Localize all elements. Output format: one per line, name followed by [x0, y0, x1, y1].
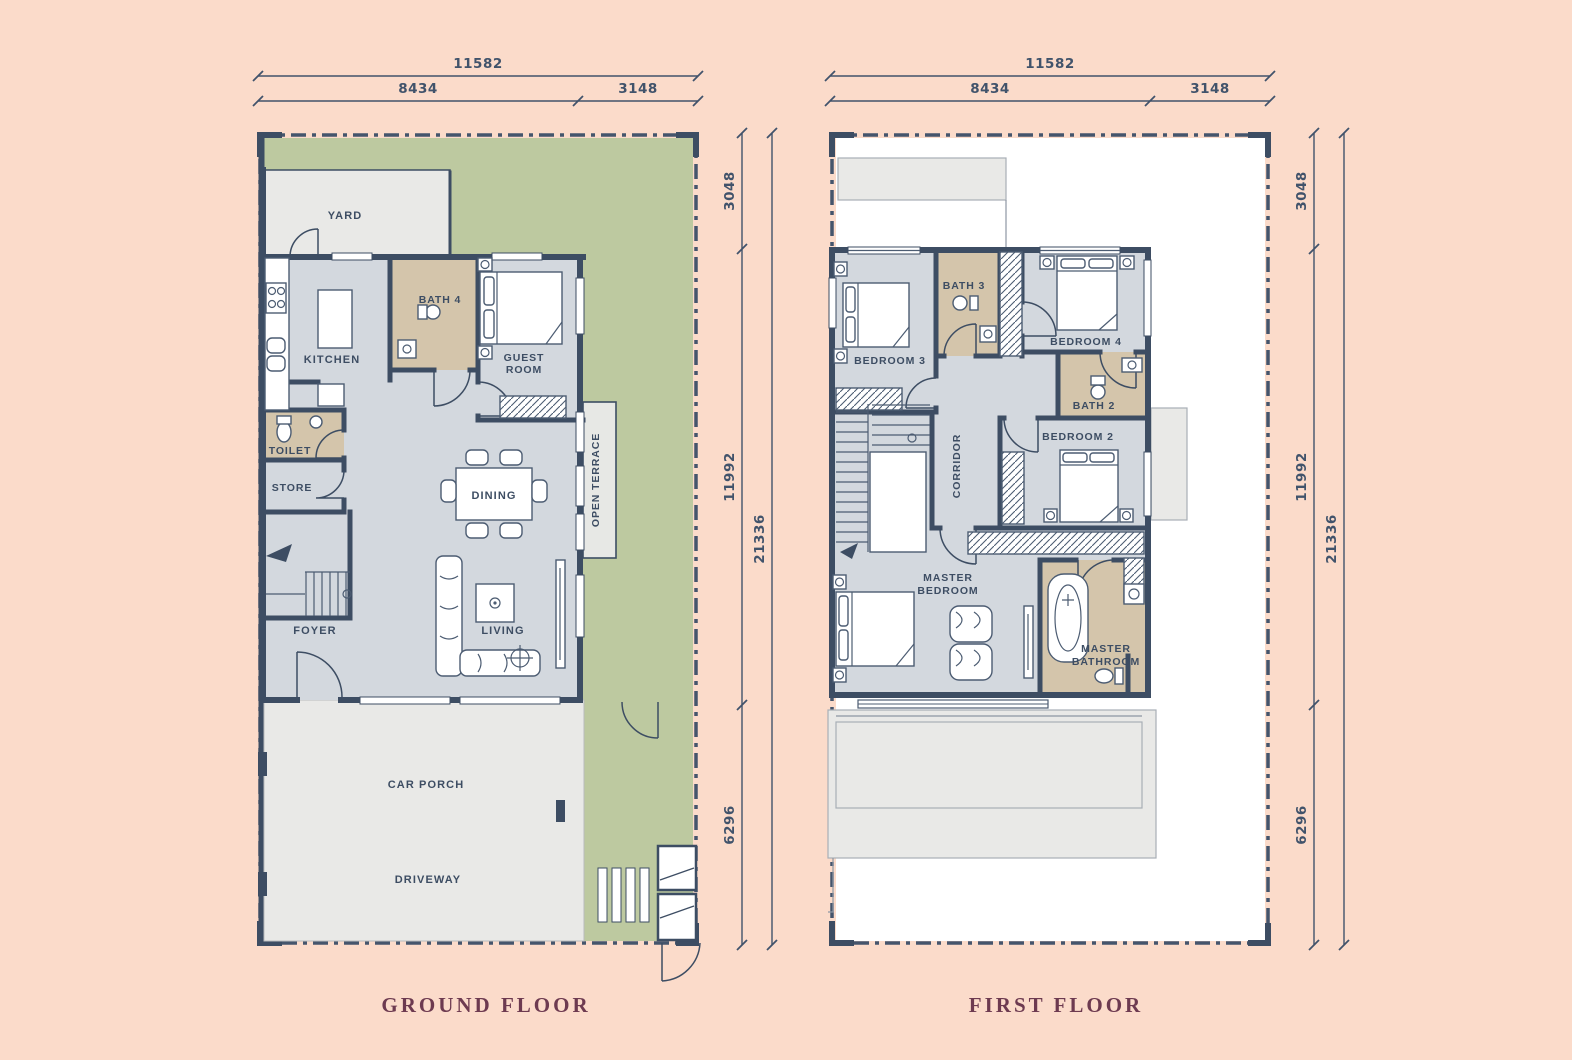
label-master-bedroom-line2: BEDROOM — [917, 585, 978, 597]
dim-gf-depth-top: 3048 — [722, 171, 738, 211]
terrace-sliding-door — [576, 412, 584, 550]
label-master-bathroom-line2: BATHROOM — [1072, 656, 1140, 668]
floor-plan-drawing: YARD KITCHEN BATH 4 GUEST ROOM TOILET ST… — [0, 0, 1572, 1060]
dim-ff-depth-bottom: 6296 — [1294, 805, 1310, 845]
label-yard: YARD — [328, 210, 363, 222]
first-floor-title: FIRST FLOOR — [969, 993, 1143, 1017]
roof-over-yard — [838, 158, 1006, 200]
dim-gf-width-total: 11582 — [453, 56, 502, 72]
label-living: LIVING — [481, 625, 524, 637]
label-dining: DINING — [471, 490, 516, 502]
roof-over-terrace — [1151, 408, 1187, 520]
dim-ff-width-total: 11582 — [1025, 56, 1074, 72]
dim-gf-width-side: 3148 — [618, 81, 658, 97]
label-guest-room-line2: ROOM — [506, 364, 542, 376]
floor-plan-sheet: YARD KITCHEN BATH 4 GUEST ROOM TOILET ST… — [0, 0, 1572, 1060]
first-floor-plan: BEDROOM 3 BATH 3 BEDROOM 4 BATH 2 BEDROO… — [828, 135, 1268, 943]
dim-gf-depth-total: 21336 — [752, 514, 768, 563]
guest-wardrobe — [500, 396, 566, 418]
label-master-bedroom-line1: MASTER — [923, 572, 973, 584]
dim-gf-depth-mid: 11992 — [722, 452, 738, 501]
label-bath4: BATH 4 — [419, 294, 462, 306]
kitchen-island — [318, 290, 352, 348]
label-corridor: CORRIDOR — [951, 434, 963, 498]
label-toilet: TOILET — [269, 445, 312, 457]
label-bedroom3: BEDROOM 3 — [854, 355, 926, 367]
dim-ff-width-side: 3148 — [1190, 81, 1230, 97]
ground-floor-plan: YARD KITCHEN BATH 4 GUEST ROOM TOILET ST… — [258, 135, 700, 981]
dim-gf-width-main: 8434 — [398, 81, 438, 97]
dim-ff-depth-total: 21336 — [1324, 514, 1340, 563]
label-foyer: FOYER — [293, 625, 336, 637]
label-guest-room-line1: GUEST — [504, 352, 545, 364]
label-open-terrace: OPEN TERRACE — [590, 433, 602, 527]
label-car-porch: CAR PORCH — [388, 779, 465, 791]
label-bath2: BATH 2 — [1073, 400, 1116, 412]
dim-gf-depth-bottom: 6296 — [722, 805, 738, 845]
dim-ff-depth-top: 3048 — [1294, 171, 1310, 211]
label-bedroom2: BEDROOM 2 — [1042, 431, 1114, 443]
ground-floor-title: GROUND FLOOR — [381, 993, 590, 1017]
dim-ff-width-main: 8434 — [970, 81, 1010, 97]
guest-bed — [478, 258, 562, 359]
label-kitchen: KITCHEN — [304, 354, 361, 366]
label-bath3: BATH 3 — [943, 280, 986, 292]
label-driveway: DRIVEWAY — [395, 874, 461, 886]
label-master-bathroom-line1: MASTER — [1081, 643, 1131, 655]
column — [556, 800, 565, 822]
label-store: STORE — [272, 482, 312, 494]
label-bedroom4: BEDROOM 4 — [1050, 336, 1122, 348]
dim-ff-depth-mid: 11992 — [1294, 452, 1310, 501]
car-porch-area — [264, 700, 584, 941]
